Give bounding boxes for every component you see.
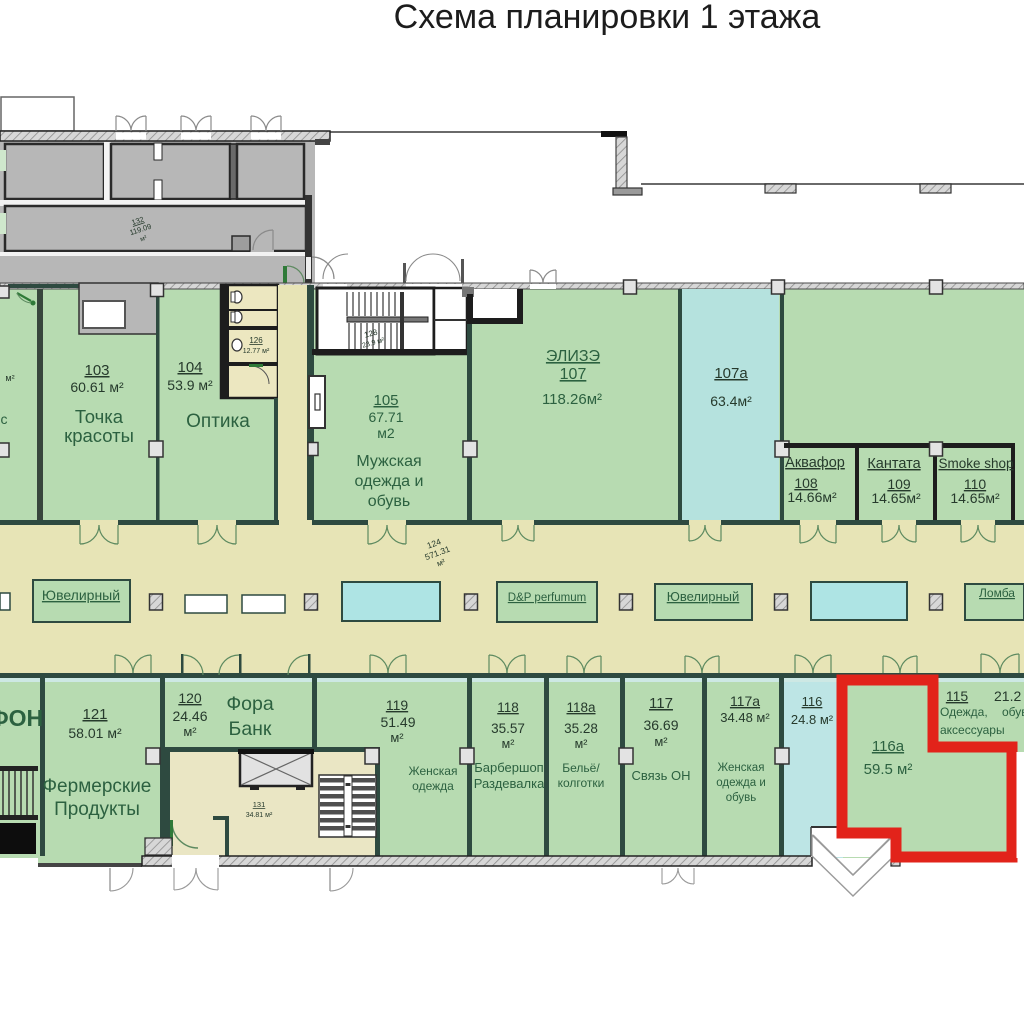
svg-text:колготки: колготки — [558, 776, 605, 790]
svg-text:51.49: 51.49 — [380, 714, 415, 730]
svg-text:Smoke shop: Smoke shop — [938, 456, 1013, 471]
svg-text:121: 121 — [82, 706, 107, 723]
svg-text:117а: 117а — [730, 693, 760, 709]
svg-text:105: 105 — [373, 392, 398, 409]
svg-text:Фермерские: Фермерские — [43, 776, 152, 797]
svg-text:Женская: Женская — [409, 764, 458, 778]
svg-text:35.28: 35.28 — [564, 721, 598, 736]
svg-text:116а: 116а — [872, 738, 905, 755]
svg-text:Одежда,: Одежда, — [940, 705, 988, 719]
svg-text:118а: 118а — [566, 700, 596, 715]
svg-text:35.57: 35.57 — [491, 721, 525, 736]
svg-text:м²: м² — [654, 734, 668, 749]
svg-text:D&P perfumum: D&P perfumum — [508, 592, 586, 604]
svg-text:12.77 м²: 12.77 м² — [243, 348, 270, 355]
svg-text:115: 115 — [946, 688, 969, 704]
svg-text:34.81 м²: 34.81 м² — [246, 812, 273, 819]
svg-text:14.65м²: 14.65м² — [950, 490, 1000, 506]
svg-text:24.46: 24.46 — [172, 708, 207, 724]
svg-text:ЭЛИЗЭ: ЭЛИЗЭ — [546, 348, 600, 365]
svg-text:116: 116 — [802, 694, 823, 709]
svg-text:обув: обув — [1002, 705, 1024, 719]
svg-text:обувь: обувь — [726, 792, 757, 804]
svg-text:Банк: Банк — [229, 718, 272, 740]
svg-text:м²: м² — [183, 724, 197, 739]
svg-text:14.66м²: 14.66м² — [787, 489, 837, 505]
svg-text:м²: м² — [575, 737, 588, 751]
svg-text:107а: 107а — [714, 365, 748, 382]
svg-text:Ювелирный: Ювелирный — [42, 587, 120, 603]
svg-text:118: 118 — [497, 700, 519, 715]
svg-text:красоты: красоты — [64, 425, 134, 446]
svg-text:14.65м²: 14.65м² — [871, 490, 921, 506]
svg-text:обувь: обувь — [368, 493, 411, 510]
svg-text:м²: м² — [5, 373, 14, 383]
svg-text:одежда и: одежда и — [716, 777, 766, 789]
svg-text:126: 126 — [249, 336, 263, 345]
svg-text:Продукты: Продукты — [54, 799, 140, 820]
svg-text:131: 131 — [253, 800, 266, 809]
svg-text:103: 103 — [84, 362, 109, 379]
svg-text:м²: м² — [502, 737, 515, 751]
svg-text:67.71: 67.71 — [368, 409, 403, 425]
svg-text:одежда и: одежда и — [355, 473, 424, 490]
svg-text:с: с — [1, 411, 8, 427]
svg-text:Схема планировки 1 этажа: Схема планировки 1 этажа — [394, 0, 821, 36]
svg-text:аксессуары: аксессуары — [940, 723, 1005, 737]
svg-text:Бельё/: Бельё/ — [562, 761, 600, 775]
svg-text:53.9 м²: 53.9 м² — [167, 377, 213, 393]
svg-text:120: 120 — [178, 690, 202, 706]
svg-text:63.4м²: 63.4м² — [710, 393, 752, 409]
svg-text:Аквафор: Аквафор — [785, 455, 845, 471]
svg-text:ФОН: ФОН — [0, 705, 43, 731]
svg-text:Связь ОН: Связь ОН — [631, 768, 690, 783]
svg-text:одежда: одежда — [412, 779, 454, 793]
svg-text:58.01 м²: 58.01 м² — [68, 725, 122, 741]
svg-text:24.8 м²: 24.8 м² — [791, 712, 834, 727]
svg-text:Ломба: Ломба — [979, 586, 1015, 600]
svg-text:Женская: Женская — [718, 762, 765, 774]
svg-text:Раздевалка: Раздевалка — [474, 776, 545, 791]
svg-text:34.48 м²: 34.48 м² — [720, 710, 770, 725]
svg-text:м2: м2 — [377, 425, 395, 441]
svg-text:60.61 м²: 60.61 м² — [70, 379, 124, 395]
svg-text:36.69: 36.69 — [643, 717, 678, 733]
svg-text:Фора: Фора — [226, 693, 274, 715]
svg-text:59.5 м²: 59.5 м² — [864, 761, 913, 778]
svg-text:104: 104 — [177, 359, 202, 376]
svg-text:21.2: 21.2 — [994, 688, 1021, 704]
svg-text:Точка: Точка — [75, 406, 124, 427]
svg-text:Барбершоп: Барбершоп — [474, 760, 543, 775]
svg-text:117: 117 — [649, 695, 673, 712]
svg-text:Ювелирный: Ювелирный — [667, 589, 740, 604]
svg-text:Оптика: Оптика — [186, 411, 250, 432]
svg-text:м²: м² — [390, 730, 404, 745]
svg-text:119: 119 — [386, 697, 409, 713]
svg-text:107: 107 — [560, 366, 587, 383]
svg-text:118.26м²: 118.26м² — [542, 391, 602, 408]
svg-text:Мужская: Мужская — [356, 453, 421, 470]
svg-text:Кантата: Кантата — [867, 456, 921, 472]
